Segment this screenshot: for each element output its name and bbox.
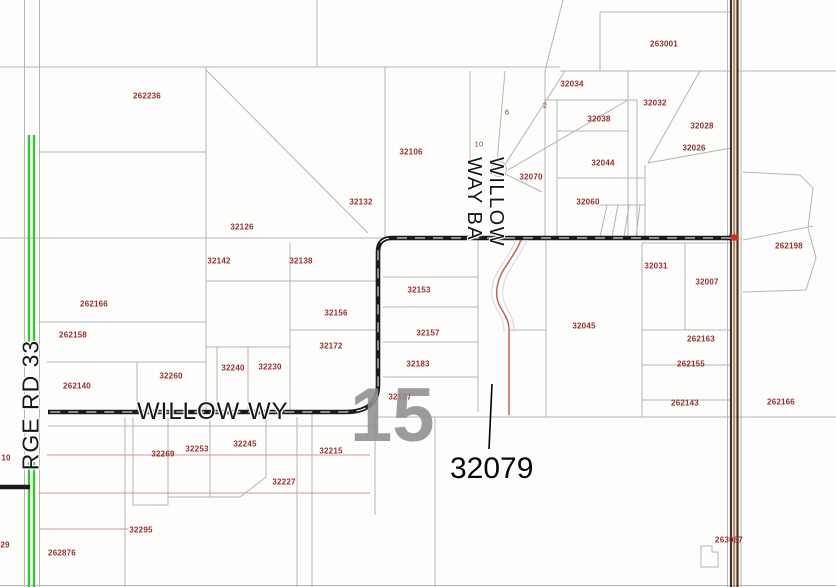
parcel-label: 32106 <box>399 148 422 157</box>
parcel-label: 32070 <box>519 173 542 182</box>
parcel-label: 32156 <box>324 309 347 318</box>
parcel-label: 263087 <box>715 536 743 545</box>
parcel-label: 262143 <box>671 399 699 408</box>
road-label-willow-way-ba: WILLOW WAY BA <box>463 157 507 247</box>
parcel-label: 262166 <box>767 398 795 407</box>
parcel-label: 32026 <box>682 144 705 153</box>
parcel-label: 32183 <box>406 360 429 369</box>
parcel-label: 32138 <box>289 257 312 266</box>
parcel-label: 32227 <box>272 478 295 487</box>
parcel-label: 32034 <box>560 80 583 89</box>
lot-number-label: 6 <box>505 108 509 117</box>
parcel-label: 262236 <box>133 92 161 101</box>
parcel-label: 32172 <box>319 342 342 351</box>
parcel-label: 32230 <box>258 363 281 372</box>
lot-number-label: 2 <box>543 101 547 110</box>
parcel-label: 32044 <box>591 159 614 168</box>
parcel-label: 262155 <box>677 360 705 369</box>
partial-parcel-label: 10 <box>1 454 10 463</box>
parcel-label: 32153 <box>407 286 430 295</box>
parcel-label: 262140 <box>63 382 91 391</box>
parcel-label: 32031 <box>644 262 667 271</box>
parcel-label: 32295 <box>129 526 152 535</box>
lot-number-label: 10 <box>475 140 484 149</box>
parcel-label: 32269 <box>151 450 174 459</box>
parcel-label: 32240 <box>221 364 244 373</box>
parcel-label: 262166 <box>80 300 108 309</box>
parcel-label: 32245 <box>233 440 256 449</box>
parcel-label: 262876 <box>48 549 76 558</box>
road-label-willow-wy: WILLOW WY <box>137 398 289 426</box>
map-canvas[interactable]: 2622362630013203432032320383202832026320… <box>0 0 836 587</box>
parcel-label: 262158 <box>59 331 87 340</box>
parcel-label: 32007 <box>695 278 718 287</box>
parcel-label: 32142 <box>207 257 230 266</box>
parcel-label-layer: 2622362630013203432032320383202832026320… <box>0 0 836 587</box>
parcel-label: 32028 <box>690 122 713 131</box>
parcel-label: 32253 <box>185 445 208 454</box>
parcel-label: 32032 <box>643 99 666 108</box>
section-number: 15 <box>350 378 435 454</box>
road-label-willow-way-ba-line1: WILLOW <box>485 157 507 247</box>
partial-parcel-label: 29 <box>0 541 9 550</box>
parcel-label: 32060 <box>576 198 599 207</box>
parcel-label: 263001 <box>650 40 678 49</box>
parcel-label: 32215 <box>319 447 342 456</box>
parcel-label: 32260 <box>159 372 182 381</box>
road-label-rge-rd-33: RGE RD 33 <box>18 340 45 470</box>
parcel-label: 32045 <box>572 322 595 331</box>
parcel-label: 262198 <box>775 242 803 251</box>
parcel-label: 32157 <box>416 329 439 338</box>
parcel-label: 32132 <box>349 198 372 207</box>
road-label-willow-way-ba-line2: WAY BA <box>463 157 485 247</box>
parcel-label: 32038 <box>587 115 610 124</box>
parcel-label: 262163 <box>687 335 715 344</box>
parcel-label: 32126 <box>230 223 253 232</box>
callout-parcel-number: 32079 <box>450 452 533 486</box>
